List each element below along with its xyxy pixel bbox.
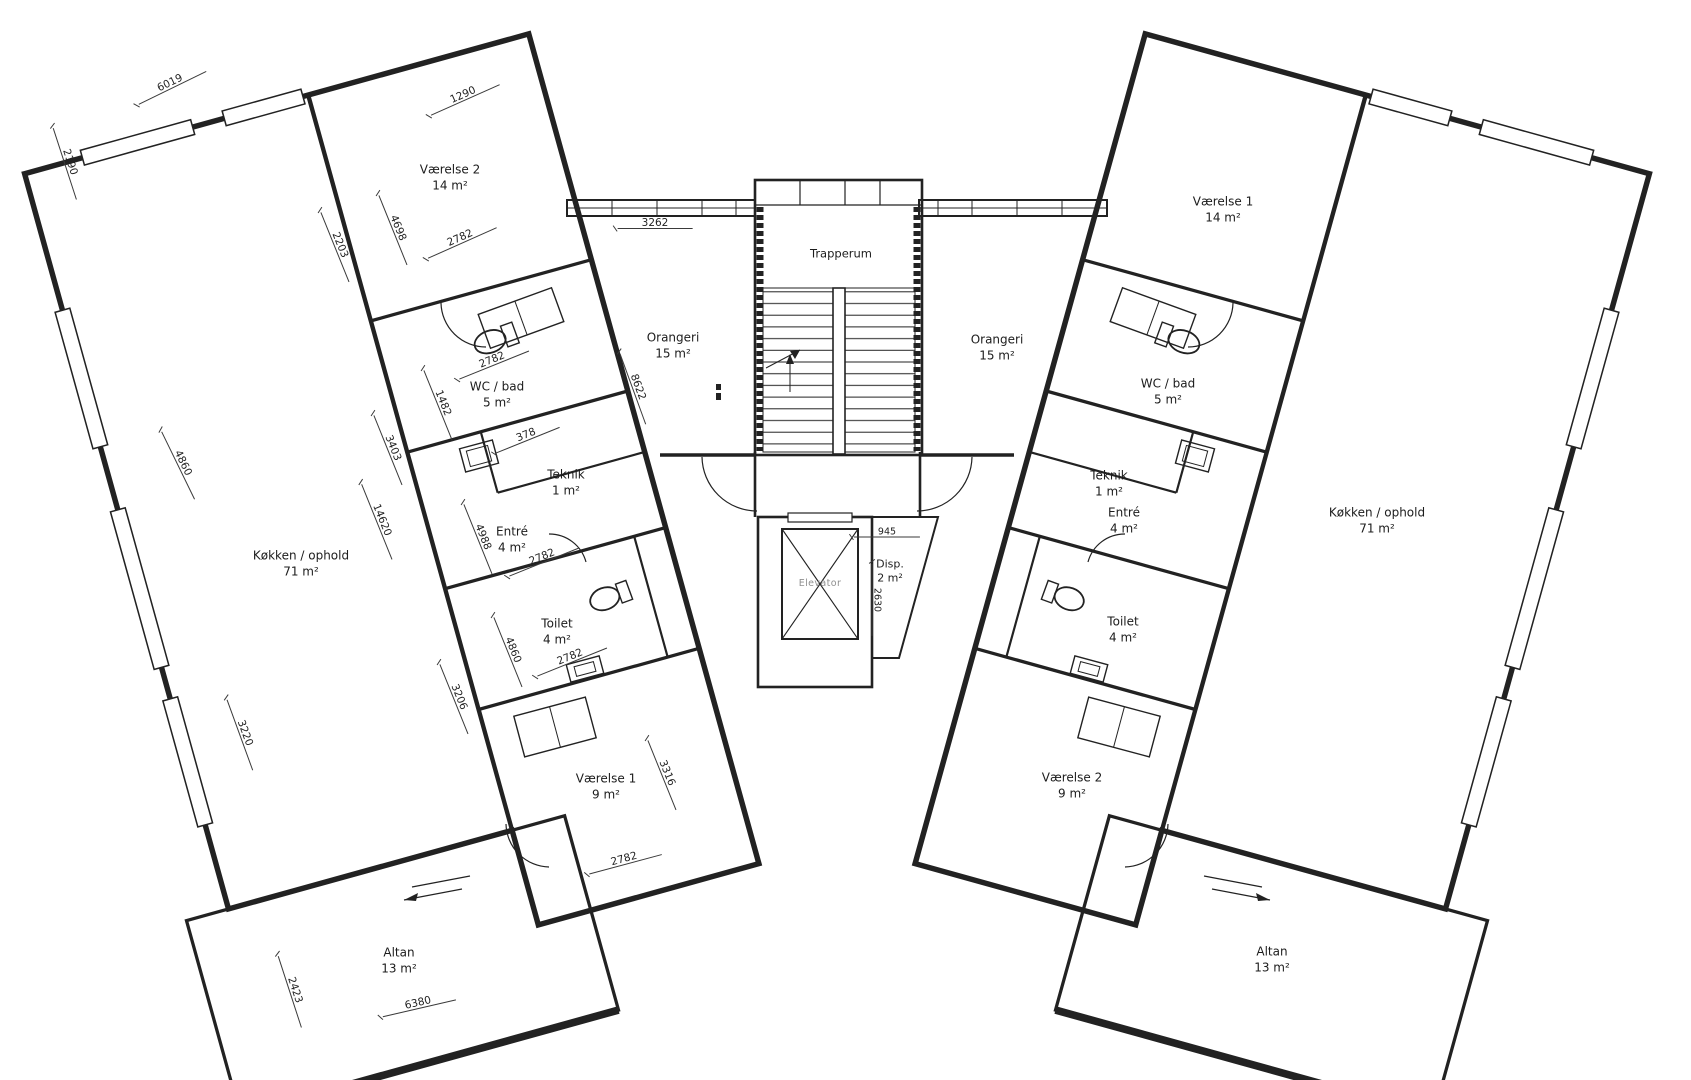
room-label-left-wc-bad: WC / bad5 m²	[470, 379, 525, 410]
room-name: Entré	[496, 524, 528, 540]
room-area: 9 m²	[1042, 786, 1102, 802]
room-label-elevator: Elevator	[799, 578, 842, 590]
room-area: 71 m²	[253, 564, 349, 580]
room-label-trapperum: Trapperum	[810, 247, 872, 262]
room-label-disp: Disp.2 m²	[876, 558, 904, 587]
room-name: Elevator	[799, 578, 842, 589]
room-label-left-vaerelse1: Værelse 19 m²	[576, 771, 636, 802]
room-name: Teknik	[547, 467, 585, 483]
room-name: Altan	[381, 945, 417, 961]
room-label-left-koekken: Køkken / ophold71 m²	[253, 548, 349, 579]
room-name: Trapperum	[810, 247, 872, 261]
room-label-right-koekken: Køkken / ophold71 m²	[1329, 505, 1425, 536]
room-label-right-orangeri: Orangeri15 m²	[971, 332, 1024, 363]
dimension-label: 945	[878, 527, 896, 538]
room-name: Køkken / ophold	[1329, 505, 1425, 521]
room-name: Toilet	[541, 616, 572, 632]
room-label-left-vaerelse2: Værelse 214 m²	[420, 162, 480, 193]
room-area: 15 m²	[647, 346, 700, 362]
room-name: Orangeri	[647, 330, 700, 346]
room-area: 1 m²	[1090, 484, 1128, 500]
room-label-right-vaerelse2: Værelse 29 m²	[1042, 770, 1102, 801]
room-area: 14 m²	[420, 178, 480, 194]
room-label-right-teknik: Teknik1 m²	[1090, 468, 1128, 499]
room-name: Værelse 2	[1042, 770, 1102, 786]
room-name: Teknik	[1090, 468, 1128, 484]
room-area: 71 m²	[1329, 521, 1425, 537]
room-name: WC / bad	[1141, 376, 1196, 392]
room-area: 4 m²	[541, 632, 572, 648]
right-apartment-walls	[887, 27, 1691, 1080]
room-label-right-vaerelse1: Værelse 114 m²	[1193, 194, 1253, 225]
room-label-right-entre: Entré4 m²	[1108, 505, 1140, 536]
room-area: 9 m²	[576, 787, 636, 803]
room-area: 15 m²	[971, 348, 1024, 364]
room-name: Værelse 2	[420, 162, 480, 178]
room-label-left-orangeri: Orangeri15 m²	[647, 330, 700, 361]
left-apartment-walls	[0, 27, 787, 1080]
room-name: Toilet	[1107, 614, 1138, 630]
core-stairwell	[755, 180, 922, 517]
room-label-left-altan: Altan13 m²	[381, 945, 417, 976]
room-label-left-teknik: Teknik1 m²	[547, 467, 585, 498]
room-area: 4 m²	[1107, 630, 1138, 646]
room-label-right-toilet: Toilet4 m²	[1107, 614, 1138, 645]
room-name: Entré	[1108, 505, 1140, 521]
room-label-right-altan: Altan13 m²	[1254, 944, 1290, 975]
floor-plan-canvas	[0, 0, 1691, 1080]
room-name: Altan	[1254, 944, 1290, 960]
room-area: 14 m²	[1193, 210, 1253, 226]
room-area: 2 m²	[876, 572, 904, 586]
room-name: Værelse 1	[576, 771, 636, 787]
room-name: WC / bad	[470, 379, 525, 395]
floor-plan-page: Værelse 214 m² WC / bad5 m² Teknik1 m² E…	[0, 0, 1691, 1080]
room-name: Værelse 1	[1193, 194, 1253, 210]
room-label-right-wc-bad: WC / bad5 m²	[1141, 376, 1196, 407]
room-area: 13 m²	[381, 961, 417, 977]
dimension-label: 3262	[642, 217, 669, 229]
room-label-left-toilet: Toilet4 m²	[541, 616, 572, 647]
room-area: 13 m²	[1254, 960, 1290, 976]
small-dimension-mark	[716, 384, 721, 400]
room-area: 4 m²	[1108, 521, 1140, 537]
room-area: 4 m²	[496, 540, 528, 556]
room-area: 5 m²	[470, 395, 525, 411]
elevator-shaft	[758, 513, 872, 687]
room-name: Disp.	[876, 558, 904, 572]
dimension-label: 2630	[872, 588, 883, 612]
room-label-left-entre: Entré4 m²	[496, 524, 528, 555]
room-name: Køkken / ophold	[253, 548, 349, 564]
room-name: Orangeri	[971, 332, 1024, 348]
room-area: 5 m²	[1141, 392, 1196, 408]
room-area: 1 m²	[547, 483, 585, 499]
